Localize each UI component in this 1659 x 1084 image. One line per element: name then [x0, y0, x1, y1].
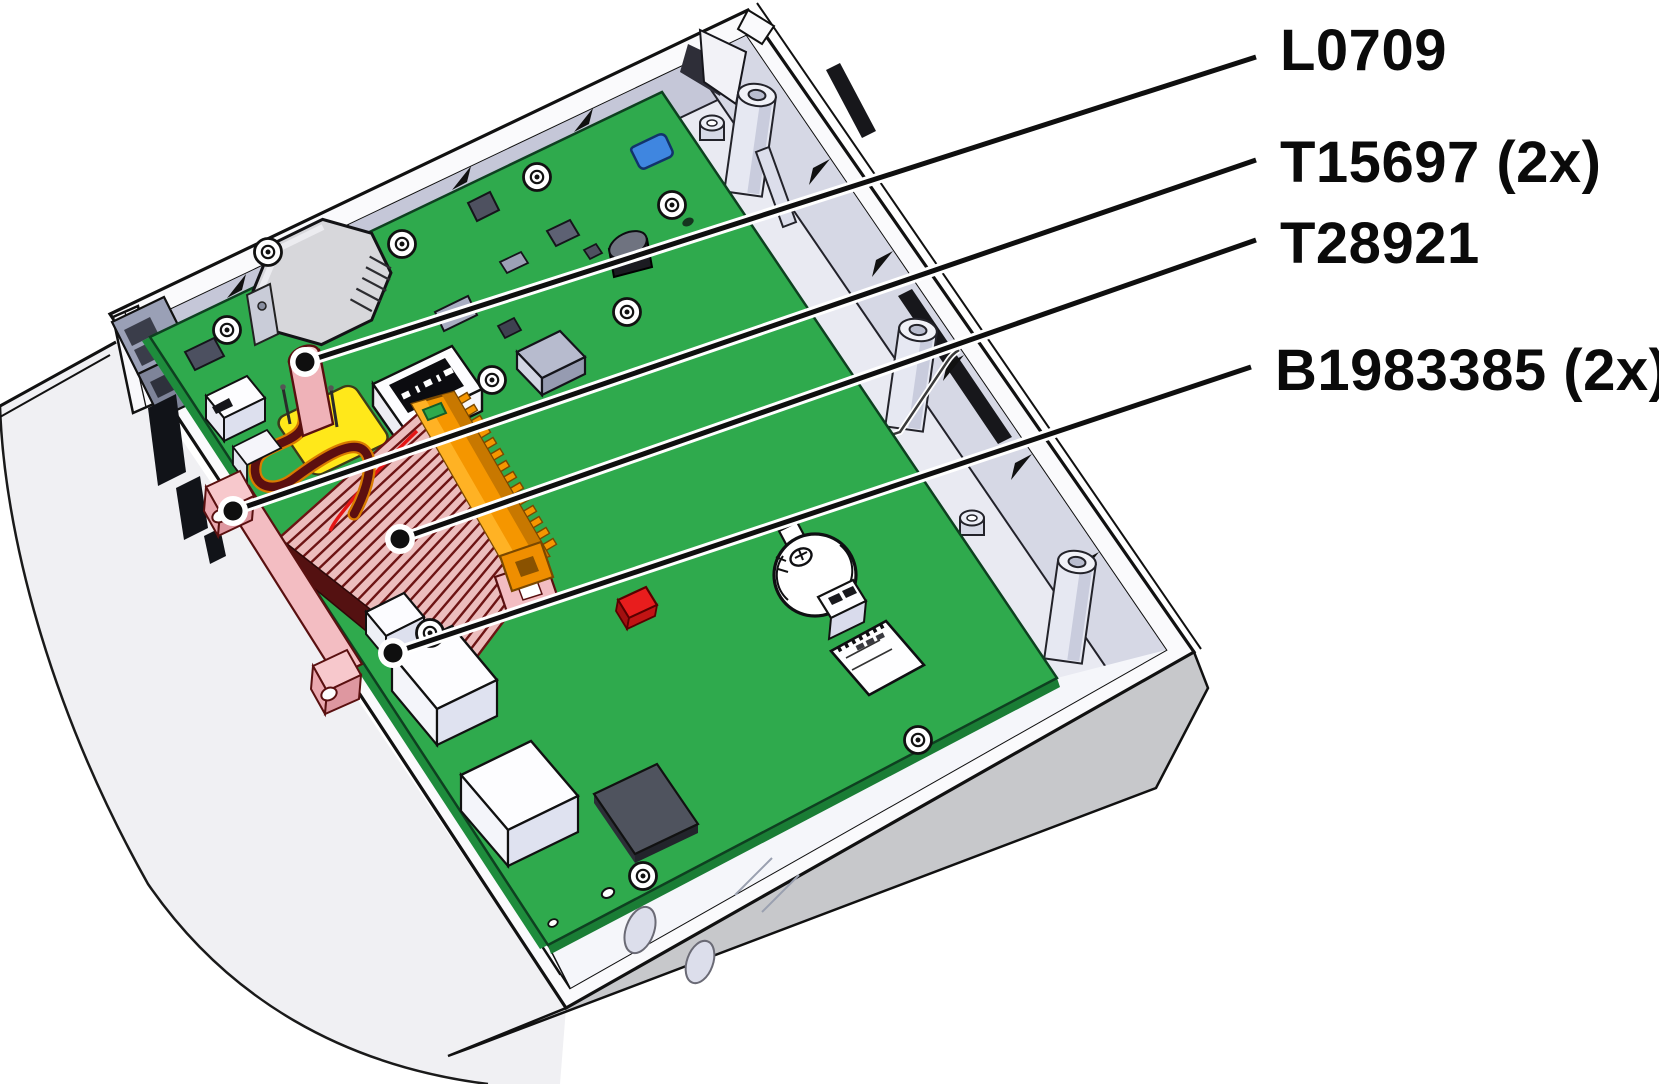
callout-label-l0709: L0709	[1280, 18, 1447, 83]
nut-post	[960, 511, 984, 536]
figure-canvas: L0709 T15697 (2x) T28921 B1983385 (2x)	[0, 0, 1659, 1084]
callout-label-t28921: T28921	[1280, 211, 1480, 276]
callout-label-t15697: T15697 (2x)	[1280, 130, 1601, 195]
nut-post	[700, 116, 724, 141]
vent-slot	[826, 63, 876, 138]
device-illustration: L0709 T15697 (2x) T28921 B1983385 (2x)	[0, 0, 1659, 1084]
callout-label-b1983385: B1983385 (2x)	[1275, 338, 1659, 403]
